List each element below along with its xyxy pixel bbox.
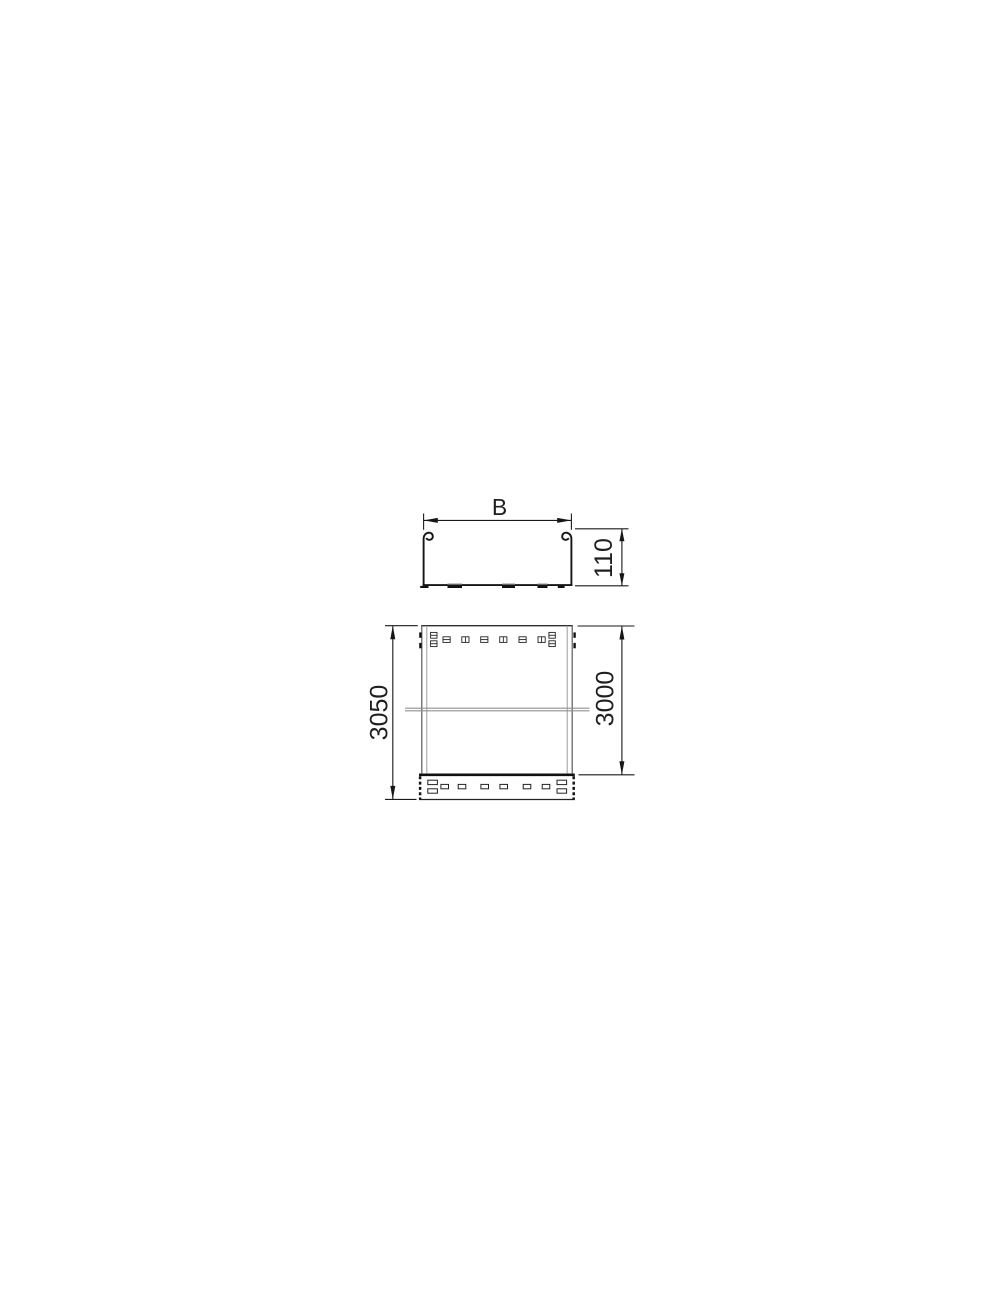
dimension-width: B (424, 494, 572, 530)
tray-right-wall (562, 533, 571, 586)
plan-view (405, 626, 590, 800)
height-arrow-bottom (619, 573, 624, 586)
length-total-label: 3050 (366, 685, 394, 741)
height-arrow-top (619, 529, 624, 542)
length-nominal-arrow-bottom (619, 761, 624, 775)
rung-perforations (431, 632, 556, 646)
width-arrow-left (424, 518, 438, 523)
drawing-svg: B 110 (0, 0, 1000, 1300)
length-total-arrow-top (390, 626, 395, 640)
height-label: 110 (590, 538, 618, 578)
dimension-length-nominal: 3000 (578, 626, 635, 775)
length-total-arrow-bottom (390, 786, 395, 800)
dimension-length-total: 3050 (366, 626, 418, 800)
tray-left-wall (424, 533, 433, 586)
front-view (420, 533, 572, 588)
coupler-band (419, 775, 575, 800)
length-nominal-label: 3000 (592, 671, 620, 727)
length-nominal-arrow-top (619, 626, 624, 640)
drawing-sheet: B 110 (0, 0, 1000, 1300)
band-slots (428, 780, 567, 793)
width-label: B (492, 494, 507, 520)
dimension-height: 110 (575, 529, 629, 586)
width-arrow-right (557, 518, 571, 523)
